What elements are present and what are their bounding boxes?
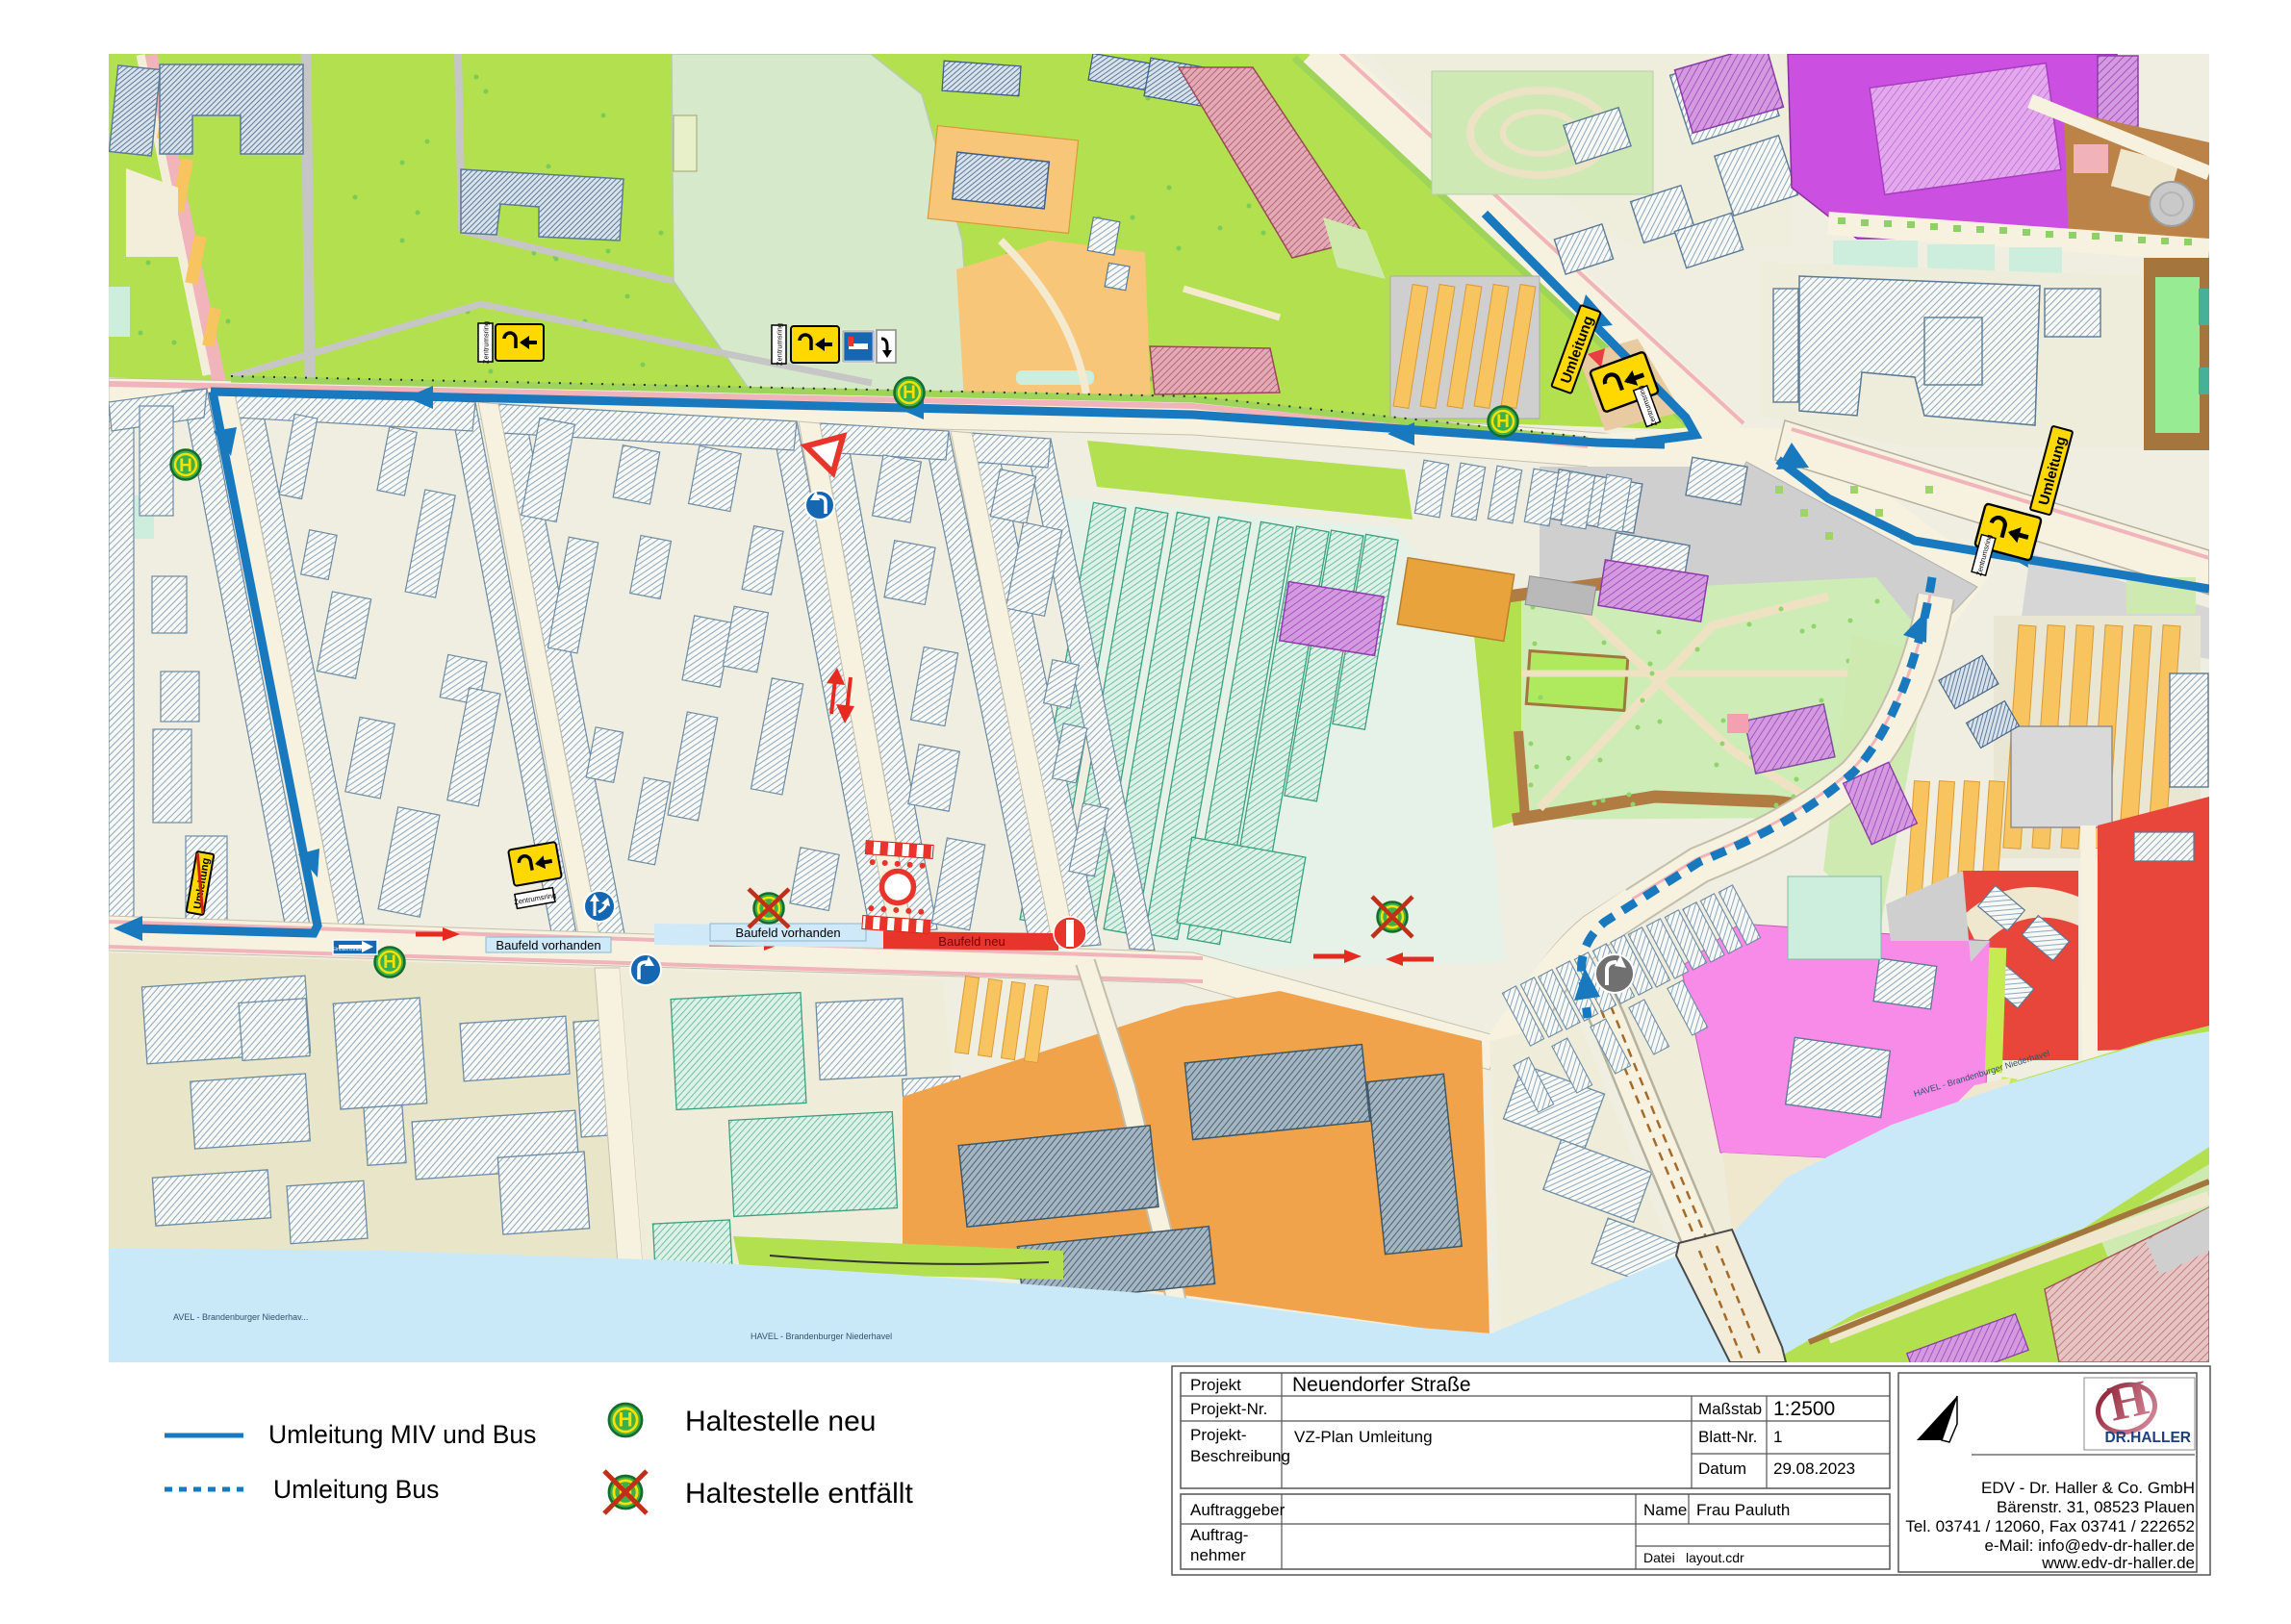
svg-text:1:2500: 1:2500 bbox=[1773, 1398, 1835, 1420]
svg-text:HAVEL - Brandenburger Niederha: HAVEL - Brandenburger Niederhavel bbox=[751, 1332, 892, 1341]
svg-text:Frau Pauluth: Frau Pauluth bbox=[1696, 1501, 1790, 1519]
svg-text:Auftraggeber: Auftraggeber bbox=[1190, 1501, 1286, 1519]
svg-text:Einbahnstraße: Einbahnstraße bbox=[333, 947, 365, 952]
svg-text:Zentrumsring: Zentrumsring bbox=[482, 321, 491, 364]
svg-text:Projekt-Nr.: Projekt-Nr. bbox=[1190, 1400, 1267, 1418]
svg-text:www.edv-dr-haller.de: www.edv-dr-haller.de bbox=[2041, 1554, 2195, 1572]
svg-text:Baufeld neu: Baufeld neu bbox=[938, 934, 1005, 949]
svg-text:Projekt-: Projekt- bbox=[1190, 1426, 1247, 1444]
svg-text:EDV - Dr. Haller & Co. GmbH: EDV - Dr. Haller & Co. GmbH bbox=[1981, 1479, 2195, 1497]
svg-text:layout.cdr: layout.cdr bbox=[1686, 1550, 1744, 1565]
svg-text:Name: Name bbox=[1643, 1501, 1687, 1519]
svg-text:Haltestelle neu: Haltestelle neu bbox=[685, 1406, 876, 1437]
svg-text:Umleitung MIV und Bus: Umleitung MIV und Bus bbox=[268, 1420, 536, 1449]
svg-text:Umleitung: Umleitung bbox=[1359, 1428, 1433, 1446]
svg-text:DR.HALLER: DR.HALLER bbox=[2104, 1430, 2191, 1446]
svg-text:H: H bbox=[383, 952, 396, 973]
svg-text:e-Mail: info@edv-dr-haller.de: e-Mail: info@edv-dr-haller.de bbox=[1984, 1536, 2195, 1555]
svg-text:H: H bbox=[618, 1409, 632, 1432]
svg-text:H: H bbox=[903, 383, 916, 403]
svg-text:Haltestelle entfällt: Haltestelle entfällt bbox=[685, 1478, 913, 1510]
svg-text:Umleitung Bus: Umleitung Bus bbox=[273, 1475, 439, 1504]
svg-text:Beschreibung: Beschreibung bbox=[1190, 1447, 1290, 1465]
svg-text:Tel. 03741 / 12060, Fax 03741: Tel. 03741 / 12060, Fax 03741 / 222652 bbox=[1905, 1517, 2195, 1535]
svg-text:H: H bbox=[1496, 412, 1510, 432]
svg-text:H: H bbox=[179, 456, 192, 476]
svg-text:Datei: Datei bbox=[1643, 1550, 1675, 1565]
svg-text:Maßstab: Maßstab bbox=[1698, 1400, 1762, 1418]
svg-text:Blatt-Nr.: Blatt-Nr. bbox=[1698, 1428, 1757, 1446]
svg-text:Neuendorfer Straße: Neuendorfer Straße bbox=[1292, 1374, 1471, 1396]
svg-text:29.08.2023: 29.08.2023 bbox=[1773, 1459, 1855, 1478]
svg-text:Auftrag-: Auftrag- bbox=[1190, 1526, 1248, 1544]
svg-text:Bärenstr. 31, 08523 Plauen: Bärenstr. 31, 08523 Plauen bbox=[1997, 1498, 2195, 1516]
svg-text:nehmer: nehmer bbox=[1190, 1546, 1246, 1564]
svg-text:VZ-Plan: VZ-Plan bbox=[1294, 1428, 1353, 1446]
svg-text:1: 1 bbox=[1773, 1428, 1782, 1446]
svg-text:Projekt: Projekt bbox=[1190, 1376, 1241, 1394]
svg-text:Zentrumsring: Zentrumsring bbox=[776, 323, 784, 366]
svg-text:Datum: Datum bbox=[1698, 1459, 1746, 1478]
svg-text:AVEL - Brandenburger Niederhav: AVEL - Brandenburger Niederhav... bbox=[173, 1312, 308, 1322]
svg-text:Baufeld vorhanden: Baufeld vorhanden bbox=[496, 938, 600, 952]
